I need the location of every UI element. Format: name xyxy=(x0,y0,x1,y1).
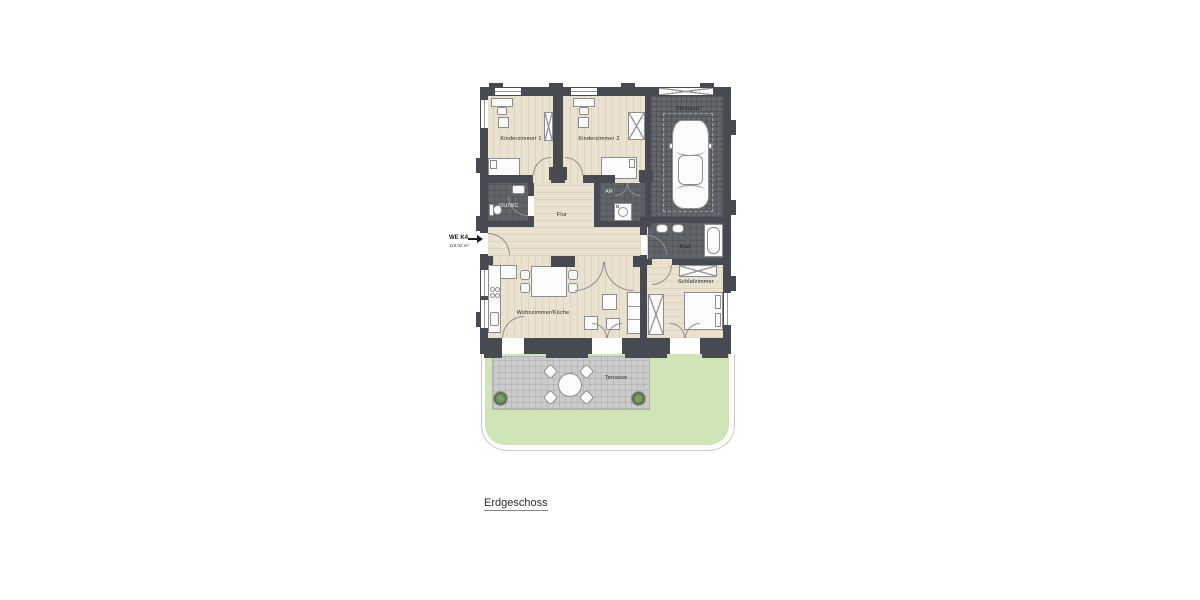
wall-corridor xyxy=(480,175,533,183)
wall-ar-left xyxy=(594,183,600,223)
room-label-kinderzimmer2: Kinderzimmer 2 xyxy=(578,136,619,142)
pillow xyxy=(715,295,721,309)
room-label-terrasse: Terrasse xyxy=(605,375,628,381)
wardrobe xyxy=(648,294,664,335)
stove-burner xyxy=(495,287,500,292)
wall-duwc-bottom xyxy=(488,221,534,227)
washbasin xyxy=(512,185,525,194)
room-label-stellplatz: Stellplatz xyxy=(676,106,700,112)
wall-wohnzimmer-stub xyxy=(480,256,493,265)
pillar xyxy=(702,354,728,358)
window xyxy=(724,293,731,325)
pillar xyxy=(731,120,736,135)
window xyxy=(481,270,488,296)
unit-area-label: 119.02 m² xyxy=(449,243,469,248)
window xyxy=(571,88,597,95)
room-label-duwc: DU/WC xyxy=(499,203,519,209)
washbasin xyxy=(672,224,684,233)
dining-chair xyxy=(520,270,530,280)
shelf xyxy=(578,117,589,128)
pillar xyxy=(621,83,635,88)
pillar xyxy=(484,354,502,358)
car-mirror xyxy=(669,143,673,149)
wall-k2-stellplatz xyxy=(645,95,651,223)
dining-chair xyxy=(520,283,530,293)
window xyxy=(481,100,488,128)
car-rear-window xyxy=(676,185,705,196)
garage-door xyxy=(659,88,713,95)
room-label-bad: Bad xyxy=(680,244,690,250)
room-label-ar: AR xyxy=(605,189,613,195)
shelf xyxy=(498,117,509,128)
wall-bad-schlafzimmer xyxy=(672,259,731,265)
pillar xyxy=(476,216,481,231)
desk xyxy=(573,98,595,107)
wall-wohnzimmer-schlafzimmer xyxy=(640,265,647,338)
pillar xyxy=(549,83,563,88)
plant-icon xyxy=(632,392,645,405)
door-opening xyxy=(528,196,534,216)
terrace-table xyxy=(558,373,582,397)
wall-post xyxy=(639,170,653,182)
wardrobe xyxy=(628,112,645,140)
wall-post xyxy=(633,256,647,267)
wall-corridor xyxy=(583,175,615,183)
stove-burner xyxy=(495,293,500,298)
desk-chair xyxy=(579,107,589,115)
dining-table xyxy=(531,266,567,297)
washing-machine-knob xyxy=(616,205,619,208)
pillow xyxy=(490,160,497,169)
kitchen-sink xyxy=(490,312,499,326)
car-mirror xyxy=(708,143,712,149)
floor-title: Erdgeschoss xyxy=(484,497,548,511)
entrance-arrow-icon xyxy=(468,238,477,240)
pillar xyxy=(546,354,588,358)
window xyxy=(481,300,488,328)
pillow xyxy=(629,159,635,168)
pillar xyxy=(476,158,481,173)
wardrobe xyxy=(544,112,553,141)
plant-icon xyxy=(494,392,507,405)
wall-post xyxy=(551,256,575,267)
wall-duwc-right xyxy=(528,183,534,196)
unit-code-label: WE K4 xyxy=(449,235,468,242)
floorplan-canvas: Kinderzimmer 1 Kinderzimmer 2 Stellplatz… xyxy=(0,0,1200,600)
terrace-door-opening xyxy=(670,338,700,354)
pillow xyxy=(715,313,721,327)
entrance-arrow-head-icon xyxy=(477,235,483,243)
wardrobe xyxy=(679,265,717,277)
room-label-kinderzimmer1: Kinderzimmer 1 xyxy=(500,136,541,142)
wall-bad-left xyxy=(640,223,647,235)
pillar xyxy=(625,354,667,358)
washing-machine-door xyxy=(618,207,628,217)
terrace-door-opening xyxy=(502,338,524,354)
wall-bad-top xyxy=(640,217,731,223)
room-label-flur: Flur xyxy=(557,212,567,218)
room-label-wohnzimmer-kueche: Wohnzimmer/Küche xyxy=(517,310,570,316)
pillar xyxy=(731,200,736,215)
desk xyxy=(491,98,513,107)
car-roof xyxy=(678,155,703,185)
terrace-door-opening xyxy=(592,338,622,354)
desk-chair xyxy=(497,107,507,115)
armchair xyxy=(602,294,617,310)
window xyxy=(495,88,521,95)
pillar xyxy=(731,276,736,291)
room-label-schlafzimmer: Schlafzimmer xyxy=(678,279,714,285)
bathtub-basin xyxy=(707,227,720,254)
washbasin xyxy=(656,224,668,233)
wall-k1-k2 xyxy=(553,95,563,175)
